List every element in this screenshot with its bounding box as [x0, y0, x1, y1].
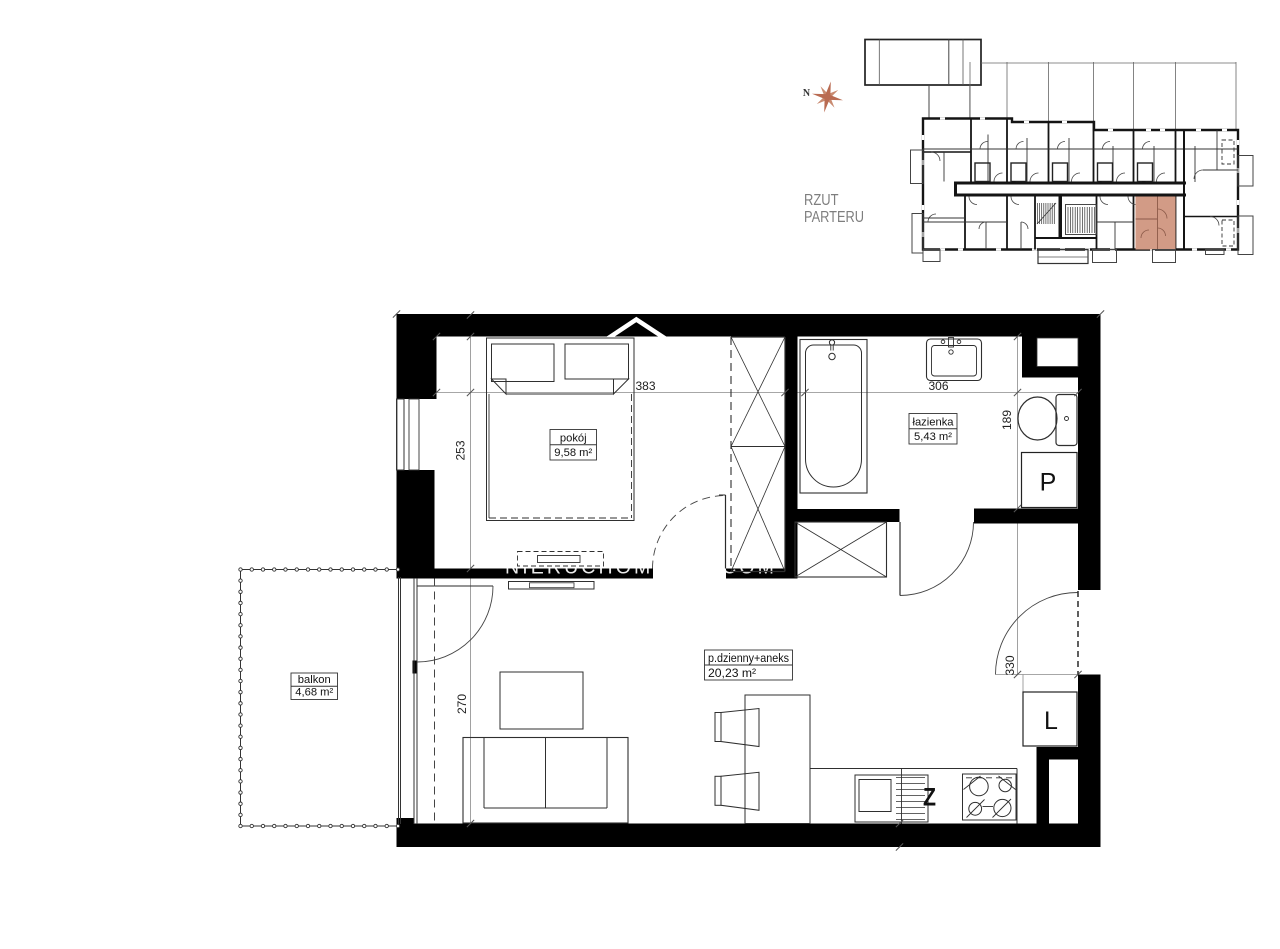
svg-text:p.dzienny+aneks: p.dzienny+aneks: [708, 651, 789, 665]
svg-text:P: P: [1040, 469, 1057, 497]
svg-text:pokój: pokój: [560, 432, 587, 444]
svg-text:270: 270: [455, 694, 469, 714]
svg-text:Z: Z: [923, 784, 936, 812]
svg-text:253: 253: [454, 440, 468, 460]
svg-text:5,43 m²: 5,43 m²: [914, 431, 952, 443]
svg-text:balkon: balkon: [298, 674, 331, 686]
svg-text:20,23 m²: 20,23 m²: [708, 666, 756, 680]
svg-text:306: 306: [928, 379, 948, 393]
svg-text:189: 189: [1000, 410, 1014, 430]
svg-text:PARTERU: PARTERU: [804, 209, 864, 226]
svg-text:N: N: [803, 88, 811, 99]
svg-text:łazienka: łazienka: [912, 416, 954, 428]
svg-text:330: 330: [1003, 655, 1017, 675]
svg-text:L: L: [1044, 707, 1058, 735]
svg-text:RZUT: RZUT: [804, 192, 839, 209]
svg-text:9,58 m²: 9,58 m²: [554, 447, 592, 459]
svg-text:4,68 m²: 4,68 m²: [295, 687, 333, 699]
svg-text:383: 383: [635, 379, 655, 393]
